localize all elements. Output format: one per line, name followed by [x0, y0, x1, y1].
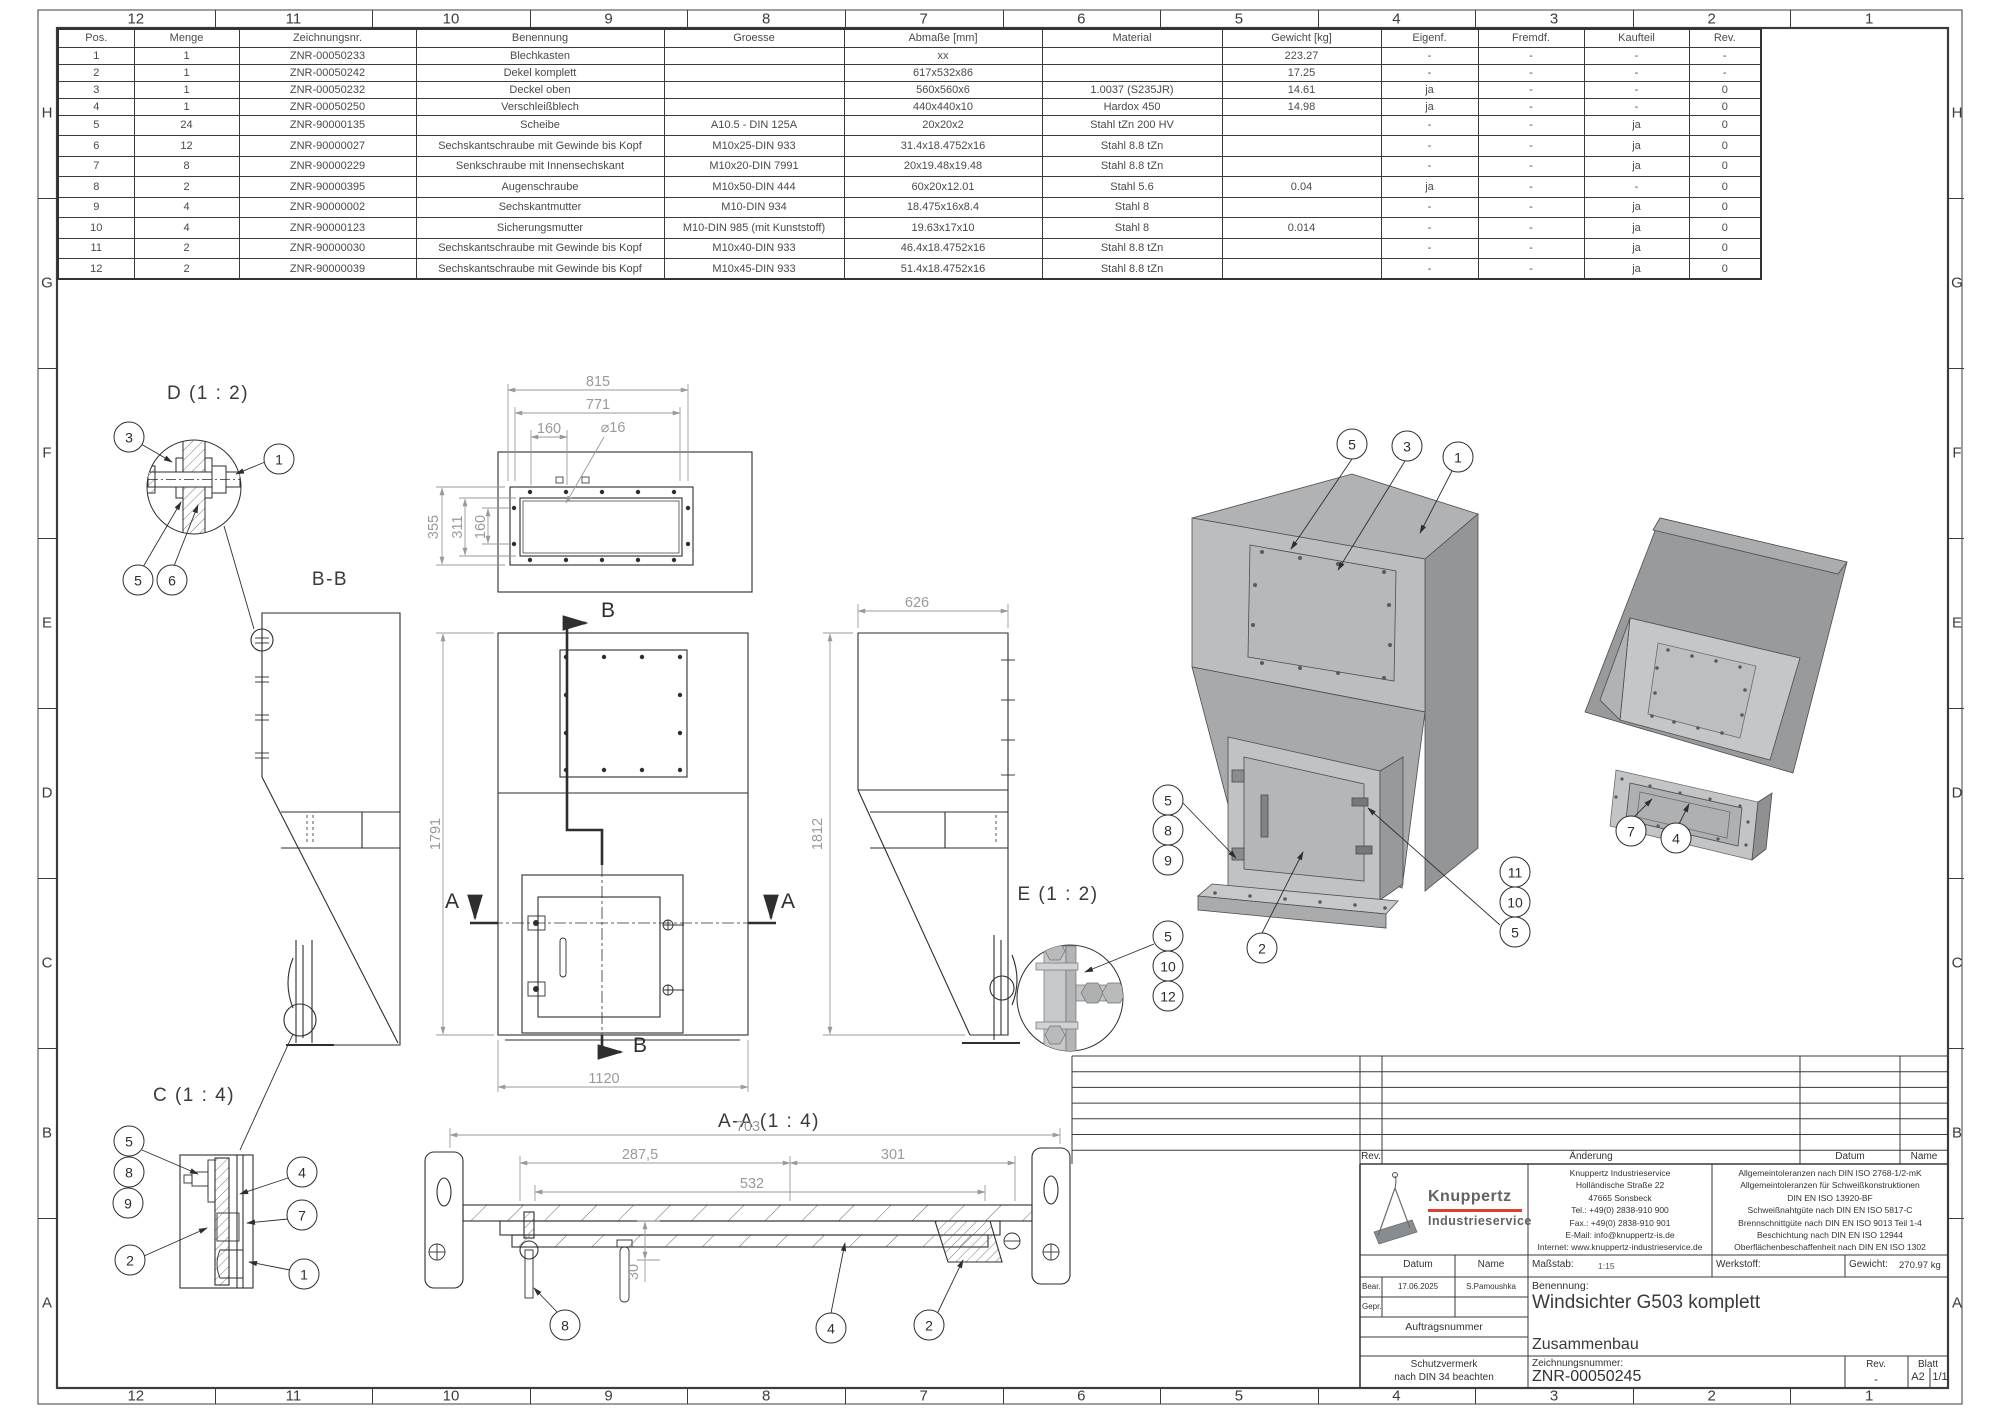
- parts-cell: 0: [1689, 81, 1761, 98]
- parts-cell: 1: [134, 98, 239, 115]
- parts-cell: -: [1584, 81, 1689, 98]
- cut-a-right-label: A: [781, 890, 795, 914]
- dim-160-side: 160: [473, 515, 489, 539]
- dim-815: 815: [586, 374, 610, 390]
- parts-header-cell: Fremdf.: [1478, 29, 1584, 47]
- tolerance-line: Allgemeintoleranzen für Schweißkonstrukt…: [1713, 1179, 1947, 1191]
- balloon-c-7: 7: [287, 1200, 318, 1231]
- border-column-label-bottom: 12: [127, 1388, 144, 1405]
- parts-cell: 14.98: [1222, 98, 1381, 115]
- balloon-aa-8: 8: [550, 1310, 581, 1341]
- parts-cell: [664, 64, 844, 81]
- rev-value: -: [1874, 1372, 1878, 1386]
- parts-cell: [1042, 47, 1222, 64]
- parts-cell: Sechskantschraube mit Gewinde bis Kopf: [416, 259, 664, 280]
- front-view-dimensions: [436, 633, 748, 1092]
- parts-cell: Sicherungsmutter: [416, 218, 664, 239]
- parts-cell: 0.014: [1222, 218, 1381, 239]
- parts-cell: 20x19.48x19.48: [844, 156, 1042, 177]
- border-tick: [1790, 1388, 1791, 1404]
- parts-cell: 60x20x12.01: [844, 177, 1042, 198]
- balloon-iso-5c: 5: [1500, 917, 1531, 948]
- parts-cell: ja: [1381, 81, 1478, 98]
- parts-cell: ja: [1381, 98, 1478, 115]
- parts-cell: -: [1478, 98, 1584, 115]
- balloon-e-5: 5: [1153, 921, 1184, 952]
- address-line: Holländische Straße 22: [1530, 1179, 1710, 1191]
- balloon-pos6: 6: [157, 565, 188, 596]
- parts-cell: [1222, 115, 1381, 136]
- dim-626: 626: [905, 595, 929, 611]
- parts-cell: Sechskantmutter: [416, 197, 664, 218]
- border-tick: [38, 708, 57, 709]
- balloon-iso-1: 1: [1443, 442, 1474, 473]
- parts-row: 78ZNR-90000229Senkschraube mit Innensech…: [58, 156, 1761, 177]
- border-row-label-right: H: [1952, 105, 1963, 122]
- parts-cell: Sechskantschraube mit Gewinde bis Kopf: [416, 136, 664, 157]
- border-tick: [1948, 708, 1964, 709]
- balloon-pos1: 1: [264, 444, 295, 475]
- rev-table-header-name: Name: [1911, 1151, 1938, 1162]
- border-tick: [1475, 1388, 1476, 1404]
- parts-cell: M10-DIN 985 (mit Kunststoff): [664, 218, 844, 239]
- parts-cell: Sechskantschraube mit Gewinde bis Kopf: [416, 238, 664, 259]
- parts-cell: Dekel komplett: [416, 64, 664, 81]
- schutzvermerk-line2: nach DIN 34 beachten: [1394, 1372, 1494, 1383]
- parts-cell: -: [1478, 136, 1584, 157]
- parts-cell: 440x440x10: [844, 98, 1042, 115]
- detail-e-drawing: [1017, 942, 1154, 1052]
- benennung-label: Benennung:: [1532, 1280, 1589, 1292]
- balloon-iso-11: 11: [1500, 857, 1531, 888]
- border-column-label-top: 2: [1707, 11, 1715, 28]
- parts-cell: [664, 98, 844, 115]
- parts-cell: 14.61: [1222, 81, 1381, 98]
- parts-cell: -: [1381, 197, 1478, 218]
- parts-row: 112ZNR-90000030Sechskantschraube mit Gew…: [58, 238, 1761, 259]
- border-column-label-top: 4: [1392, 11, 1400, 28]
- parts-header-cell: Abmaße [mm]: [844, 29, 1042, 47]
- parts-cell: 10: [58, 218, 134, 239]
- border-tick: [38, 1048, 57, 1049]
- parts-cell: -: [1478, 197, 1584, 218]
- balloon-iso-3: 3: [1392, 431, 1423, 462]
- border-row-label-left: F: [42, 445, 51, 462]
- balloon-iso-5b: 5: [1153, 785, 1184, 816]
- parts-header-cell: Eigenf.: [1381, 29, 1478, 47]
- drawing-sheet: Pos.MengeZeichnungsnr.BenennungGroesseAb…: [0, 0, 2000, 1414]
- parts-cell: Augenschraube: [416, 177, 664, 198]
- parts-cell: -: [1478, 47, 1584, 64]
- border-row-label-left: E: [42, 615, 52, 632]
- border-tick: [1160, 1388, 1161, 1404]
- parts-cell: -: [1689, 47, 1761, 64]
- parts-cell: 12: [134, 136, 239, 157]
- parts-cell: ZNR-90000135: [239, 115, 416, 136]
- border-column-label-top: 10: [443, 11, 460, 28]
- drawing-subtitle: Zusammenbau: [1532, 1336, 1639, 1354]
- border-column-label-bottom: 6: [1077, 1388, 1085, 1405]
- border-row-label-left: D: [42, 785, 53, 802]
- company-logo-icon: [1368, 1172, 1426, 1253]
- parts-header-cell: Menge: [134, 29, 239, 47]
- dim-311: 311: [450, 515, 466, 538]
- company-name-2: Industrieservice: [1428, 1214, 1532, 1228]
- balloon-pos5: 5: [123, 565, 154, 596]
- border-row-label-right: C: [1952, 955, 1963, 972]
- parts-cell: M10x50-DIN 444: [664, 177, 844, 198]
- section-aa-leaders: [534, 1243, 963, 1314]
- parts-cell: -: [1478, 177, 1584, 198]
- parts-cell: 31.4x18.4752x16: [844, 136, 1042, 157]
- parts-header-cell: Kaufteil: [1584, 29, 1689, 47]
- border-tick: [1948, 198, 1964, 199]
- parts-cell: Stahl 5.6: [1042, 177, 1222, 198]
- parts-cell: 1: [134, 64, 239, 81]
- border-column-label-bottom: 2: [1707, 1388, 1715, 1405]
- parts-row: 31ZNR-00050232Deckel oben560x560x61.0037…: [58, 81, 1761, 98]
- dim-1791: 1791: [428, 818, 444, 850]
- parts-cell: ZNR-90000229: [239, 156, 416, 177]
- bear-datum: 17.06.2025: [1398, 1282, 1438, 1291]
- balloon-iso2-7: 7: [1616, 816, 1647, 847]
- tolerance-line: Brennschnittgüte nach DIN EN ISO 9013 Te…: [1713, 1217, 1947, 1229]
- border-tick: [530, 10, 531, 28]
- parts-cell: ZNR-90000123: [239, 218, 416, 239]
- parts-cell: ZNR-90000030: [239, 238, 416, 259]
- parts-cell: 2: [58, 64, 134, 81]
- parts-cell: [1222, 136, 1381, 157]
- border-tick: [845, 1388, 846, 1404]
- border-tick: [1633, 1388, 1634, 1404]
- balloon-c-1: 1: [289, 1259, 320, 1290]
- cut-b-bottom-label: B: [633, 1034, 647, 1058]
- border-column-label-top: 5: [1235, 11, 1243, 28]
- parts-row: 94ZNR-90000002SechskantmutterM10-DIN 934…: [58, 197, 1761, 218]
- parts-cell: 0: [1689, 115, 1761, 136]
- balloon-c-9: 9: [113, 1188, 144, 1219]
- parts-cell: -: [1381, 259, 1478, 280]
- parts-cell: ZNR-00050233: [239, 47, 416, 64]
- parts-cell: ZNR-90000002: [239, 197, 416, 218]
- balloon-iso2-4: 4: [1661, 823, 1692, 854]
- parts-cell: 223.27: [1222, 47, 1381, 64]
- border-row-label-right: B: [1952, 1125, 1962, 1142]
- blatt-count: 1/1: [1932, 1371, 1947, 1383]
- parts-cell: 24: [134, 115, 239, 136]
- parts-header-cell: Gewicht [kg]: [1222, 29, 1381, 47]
- border-column-label-top: 8: [762, 11, 770, 28]
- parts-cell: Blechkasten: [416, 47, 664, 64]
- parts-cell: ZNR-00050232: [239, 81, 416, 98]
- parts-cell: M10x20-DIN 7991: [664, 156, 844, 177]
- dim-771: 771: [586, 397, 610, 413]
- border-tick: [1003, 10, 1004, 28]
- border-row-label-left: G: [41, 275, 53, 292]
- parts-cell: -: [1478, 81, 1584, 98]
- parts-cell: 8: [58, 177, 134, 198]
- border-column-label-top: 11: [286, 11, 302, 28]
- parts-cell: ja: [1584, 238, 1689, 259]
- company-name: Knuppertz: [1428, 1188, 1512, 1206]
- address-line: Fax.: +49(0) 2838-910 901: [1530, 1217, 1710, 1229]
- balloon-c-4: 4: [287, 1157, 318, 1188]
- parts-cell: ja: [1584, 156, 1689, 177]
- border-tick: [530, 1388, 531, 1404]
- drawing-title: Windsichter G503 komplett: [1532, 1292, 1760, 1314]
- border-tick: [215, 10, 216, 28]
- parts-cell: Hardox 450: [1042, 98, 1222, 115]
- parts-cell: -: [1584, 64, 1689, 81]
- border-column-label-top: 3: [1550, 11, 1558, 28]
- parts-cell: -: [1584, 98, 1689, 115]
- parts-cell: 19.63x17x10: [844, 218, 1042, 239]
- iso-main-drawing: [1192, 474, 1478, 928]
- section-aa-label: A-A (1 : 4): [718, 1111, 820, 1133]
- dim-dia16: ⌀16: [601, 420, 626, 436]
- border-row-label-right: G: [1951, 275, 1963, 292]
- detail-c-label: C (1 : 4): [153, 1085, 235, 1107]
- parts-header-cell: Zeichnungsnr.: [239, 29, 416, 47]
- tolerance-line: Oberflächenbeschaffenheit nach DIN EN IS…: [1713, 1241, 1947, 1253]
- border-tick: [1948, 1048, 1964, 1049]
- cut-b-top-label: B: [601, 599, 615, 623]
- border-row-label-left: H: [42, 105, 53, 122]
- parts-cell: 1.0037 (S235JR): [1042, 81, 1222, 98]
- parts-cell: -: [1381, 238, 1478, 259]
- border-column-label-bottom: 8: [762, 1388, 770, 1405]
- parts-header-cell: Benennung: [416, 29, 664, 47]
- iso-bottom-drawing: [1585, 518, 1847, 860]
- parts-cell: [664, 81, 844, 98]
- parts-cell: Senkschraube mit Innensechskant: [416, 156, 664, 177]
- parts-cell: 0: [1689, 156, 1761, 177]
- massstab-value: 1:15: [1598, 1261, 1615, 1271]
- parts-cell: -: [1689, 64, 1761, 81]
- parts-row: 82ZNR-90000395AugenschraubeM10x50-DIN 44…: [58, 177, 1761, 198]
- detail-d-drawing: [141, 439, 265, 629]
- parts-cell: 2: [134, 238, 239, 259]
- tolerance-line: Allgemeintoleranzen nach DIN ISO 2768-1/…: [1713, 1167, 1947, 1179]
- company-address: Knuppertz Industrieservice Holländische …: [1530, 1167, 1710, 1254]
- rev-table-header-aenderung: Änderung: [1569, 1151, 1612, 1162]
- parts-cell: 2: [134, 259, 239, 280]
- border-column-label-top: 1: [1865, 11, 1873, 28]
- border-tick: [845, 10, 846, 28]
- side-view-drawing: [858, 633, 1020, 1043]
- parts-cell: -: [1478, 156, 1584, 177]
- dim-1120: 1120: [588, 1071, 619, 1087]
- dim-1812: 1812: [810, 818, 826, 850]
- parts-cell: 0.04: [1222, 177, 1381, 198]
- side-view-dimensions: [823, 604, 1008, 1035]
- name-header: Name: [1478, 1259, 1505, 1270]
- parts-cell: ZNR-90000395: [239, 177, 416, 198]
- border-row-label-right: E: [1952, 615, 1962, 632]
- parts-row: 21ZNR-00050242Dekel komplett617x532x8617…: [58, 64, 1761, 81]
- parts-cell: -: [1478, 115, 1584, 136]
- address-line: Knuppertz Industrieservice: [1530, 1167, 1710, 1179]
- parts-cell: [1222, 156, 1381, 177]
- parts-cell: -: [1584, 177, 1689, 198]
- parts-cell: Stahl 8.8 tZn: [1042, 238, 1222, 259]
- parts-cell: 4: [134, 197, 239, 218]
- parts-cell: 4: [58, 98, 134, 115]
- tolerance-line: DIN EN ISO 13920-BF: [1713, 1192, 1947, 1204]
- balloon-iso-9: 9: [1153, 845, 1184, 876]
- detail-d-label: D (1 : 2): [167, 383, 249, 405]
- border-column-label-top: 6: [1077, 11, 1085, 28]
- parts-cell: ZNR-90000027: [239, 136, 416, 157]
- parts-cell: 8: [134, 156, 239, 177]
- parts-cell: -: [1381, 47, 1478, 64]
- parts-row: 11ZNR-00050233Blechkastenxx223.27----: [58, 47, 1761, 64]
- balloon-c-5: 5: [114, 1126, 145, 1157]
- border-tick: [1948, 878, 1964, 879]
- parts-cell: 0: [1689, 177, 1761, 198]
- parts-header-cell: Material: [1042, 29, 1222, 47]
- parts-cell: -: [1584, 47, 1689, 64]
- gepr-label: Gepr.: [1362, 1302, 1382, 1311]
- dim-301: 301: [881, 1147, 905, 1163]
- balloon-c-2: 2: [115, 1245, 146, 1276]
- address-line: E-Mail: info@knuppertz-is.de: [1530, 1229, 1710, 1241]
- section-aa-drawing: [425, 1148, 1070, 1302]
- parts-cell: -: [1478, 218, 1584, 239]
- parts-cell: 18.475x16x8.4: [844, 197, 1042, 218]
- parts-cell: Verschleißblech: [416, 98, 664, 115]
- border-row-label-right: F: [1952, 445, 1961, 462]
- border-tick: [1318, 1388, 1319, 1404]
- parts-cell: ZNR-00050250: [239, 98, 416, 115]
- blatt-format: A2: [1911, 1371, 1924, 1383]
- address-line: 47665 Sonsbeck: [1530, 1192, 1710, 1204]
- balloon-iso-8: 8: [1153, 815, 1184, 846]
- parts-header-cell: Pos.: [58, 29, 134, 47]
- section-bb-drawing: [240, 613, 400, 1150]
- dim-532: 532: [740, 1176, 764, 1192]
- border-column-label-bottom: 1: [1865, 1388, 1873, 1405]
- parts-cell: 7: [58, 156, 134, 177]
- balloon-e-10: 10: [1153, 951, 1184, 982]
- section-bb-label: B-B: [312, 569, 348, 591]
- parts-cell: 2: [134, 177, 239, 198]
- border-row-label-right: A: [1952, 1295, 1962, 1312]
- border-row-label-left: A: [42, 1295, 52, 1312]
- border-column-label-bottom: 5: [1235, 1388, 1243, 1405]
- parts-cell: -: [1381, 218, 1478, 239]
- parts-cell: M10x40-DIN 933: [664, 238, 844, 259]
- parts-cell: -: [1478, 64, 1584, 81]
- gewicht-label: Gewicht:: [1849, 1259, 1888, 1270]
- tolerance-line: Schweißnahtgüte nach DIN EN ISO 5817-C: [1713, 1204, 1947, 1216]
- parts-cell: [1222, 238, 1381, 259]
- parts-row: 104ZNR-90000123SicherungsmutterM10-DIN 9…: [58, 218, 1761, 239]
- bear-label: Bear.: [1362, 1282, 1381, 1291]
- parts-cell: xx: [844, 47, 1042, 64]
- parts-cell: 0: [1689, 218, 1761, 239]
- border-column-label-top: 7: [920, 11, 928, 28]
- border-row-label-right: D: [1952, 785, 1963, 802]
- border-column-label-bottom: 9: [604, 1388, 612, 1405]
- logo-red-underline: [1428, 1209, 1522, 1212]
- rev-table-header-rev: Rev.: [1361, 1151, 1381, 1162]
- parts-cell: ja: [1584, 218, 1689, 239]
- parts-cell: -: [1478, 259, 1584, 280]
- parts-cell: 3: [58, 81, 134, 98]
- parts-cell: 617x532x86: [844, 64, 1042, 81]
- parts-cell: 12: [58, 259, 134, 280]
- auftragsnummer-label: Auftragsnummer: [1405, 1321, 1483, 1333]
- parts-cell: ja: [1584, 136, 1689, 157]
- parts-cell: Stahl 8: [1042, 197, 1222, 218]
- blatt-label: Blatt: [1918, 1359, 1938, 1370]
- parts-cell: M10x45-DIN 933: [664, 259, 844, 280]
- dim-355: 355: [426, 515, 442, 539]
- parts-header-cell: Rev.: [1689, 29, 1761, 47]
- border-row-label-left: B: [42, 1125, 52, 1142]
- border-column-label-top: 9: [604, 11, 612, 28]
- bear-name: S.Pamoushka: [1466, 1282, 1516, 1291]
- border-tick: [687, 10, 688, 28]
- border-column-label-bottom: 10: [443, 1388, 460, 1405]
- parts-cell: -: [1381, 136, 1478, 157]
- border-tick: [38, 1218, 57, 1219]
- parts-cell: 1: [134, 47, 239, 64]
- address-line: Tel.: +49(0) 2838-910 900: [1530, 1204, 1710, 1216]
- parts-cell: -: [1381, 115, 1478, 136]
- parts-cell: 4: [134, 218, 239, 239]
- tolerances-block: Allgemeintoleranzen nach DIN ISO 2768-1/…: [1713, 1167, 1947, 1254]
- top-view-drawing: [498, 452, 752, 592]
- parts-cell: [664, 47, 844, 64]
- parts-header-cell: Groesse: [664, 29, 844, 47]
- border-tick: [215, 1388, 216, 1404]
- parts-cell: [1042, 64, 1222, 81]
- border-tick: [38, 368, 57, 369]
- parts-cell: -: [1381, 64, 1478, 81]
- border-tick: [1790, 10, 1791, 28]
- border-column-label-bottom: 3: [1550, 1388, 1558, 1405]
- balloon-iso-10: 10: [1500, 887, 1531, 918]
- parts-cell: 0: [1689, 136, 1761, 157]
- parts-cell: 9: [58, 197, 134, 218]
- border-column-label-bottom: 11: [286, 1388, 302, 1405]
- parts-cell: ZNR-90000039: [239, 259, 416, 280]
- parts-cell: ja: [1584, 197, 1689, 218]
- parts-cell: ja: [1584, 115, 1689, 136]
- balloon-pos3: 3: [114, 422, 145, 453]
- tolerance-line: Beschichtung nach DIN EN ISO 12944: [1713, 1229, 1947, 1241]
- balloon-aa-2: 2: [914, 1310, 945, 1341]
- parts-cell: [1222, 259, 1381, 280]
- parts-cell: ja: [1381, 177, 1478, 198]
- dim-160-top: 160: [537, 421, 561, 437]
- parts-cell: 46.4x18.4752x16: [844, 238, 1042, 259]
- address-line: Internet: www.knuppertz-industrieservice…: [1530, 1241, 1710, 1253]
- detail-c-drawing: [180, 1155, 253, 1288]
- parts-cell: M10-DIN 934: [664, 197, 844, 218]
- border-tick: [1003, 1388, 1004, 1404]
- parts-cell: -: [1478, 238, 1584, 259]
- rev-table-header-datum: Datum: [1835, 1151, 1864, 1162]
- parts-cell: Stahl 8: [1042, 218, 1222, 239]
- parts-row: 612ZNR-90000027Sechskantschraube mit Gew…: [58, 136, 1761, 157]
- parts-cell: 51.4x18.4752x16: [844, 259, 1042, 280]
- dim-287-5: 287,5: [622, 1147, 658, 1163]
- parts-list-table: Pos.MengeZeichnungsnr.BenennungGroesseAb…: [57, 28, 1762, 280]
- border-column-label-top: 12: [127, 11, 144, 28]
